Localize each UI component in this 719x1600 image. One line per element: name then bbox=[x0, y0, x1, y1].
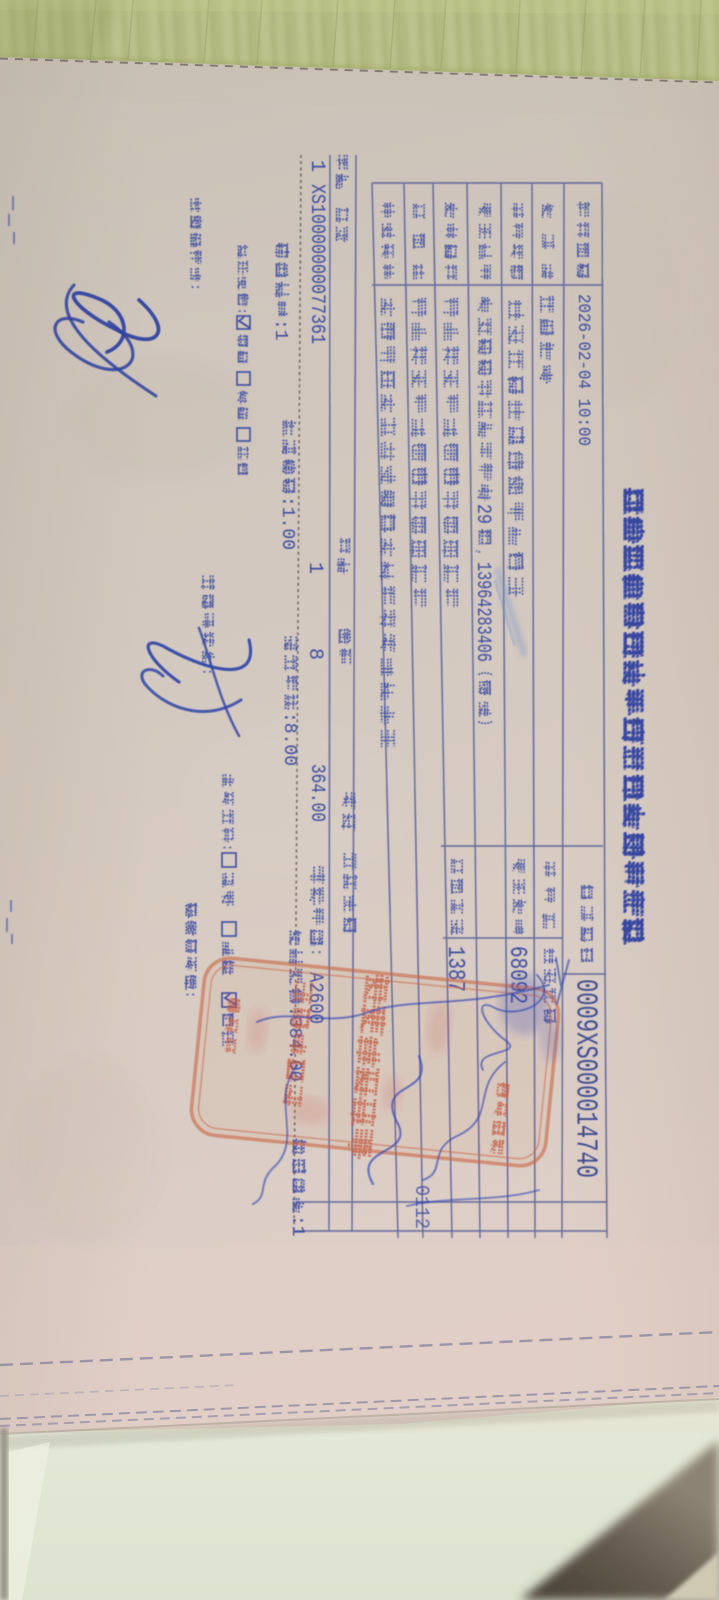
svg-text:1: 1 bbox=[303, 562, 326, 574]
svg-text:13964283406: 13964283406 bbox=[471, 562, 494, 662]
svg-text::1: :1 bbox=[270, 319, 290, 341]
svg-text:2026-02-04 10:00: 2026-02-04 10:00 bbox=[573, 294, 593, 446]
svg-text:364.00: 364.00 bbox=[305, 764, 328, 822]
svg-text:29: 29 bbox=[471, 504, 494, 524]
svg-text::1: :1 bbox=[287, 1215, 307, 1237]
svg-text::8.00: :8.00 bbox=[279, 712, 299, 766]
svg-text:0112: 0112 bbox=[409, 1185, 432, 1229]
svg-text:XS10000000077361: XS10000000077361 bbox=[305, 184, 328, 344]
svg-text:1: 1 bbox=[305, 160, 328, 172]
svg-text:8: 8 bbox=[303, 648, 326, 660]
svg-text:0009XS000014740: 0009XS000014740 bbox=[568, 979, 603, 1178]
svg-text::1.00: :1.00 bbox=[277, 496, 297, 550]
